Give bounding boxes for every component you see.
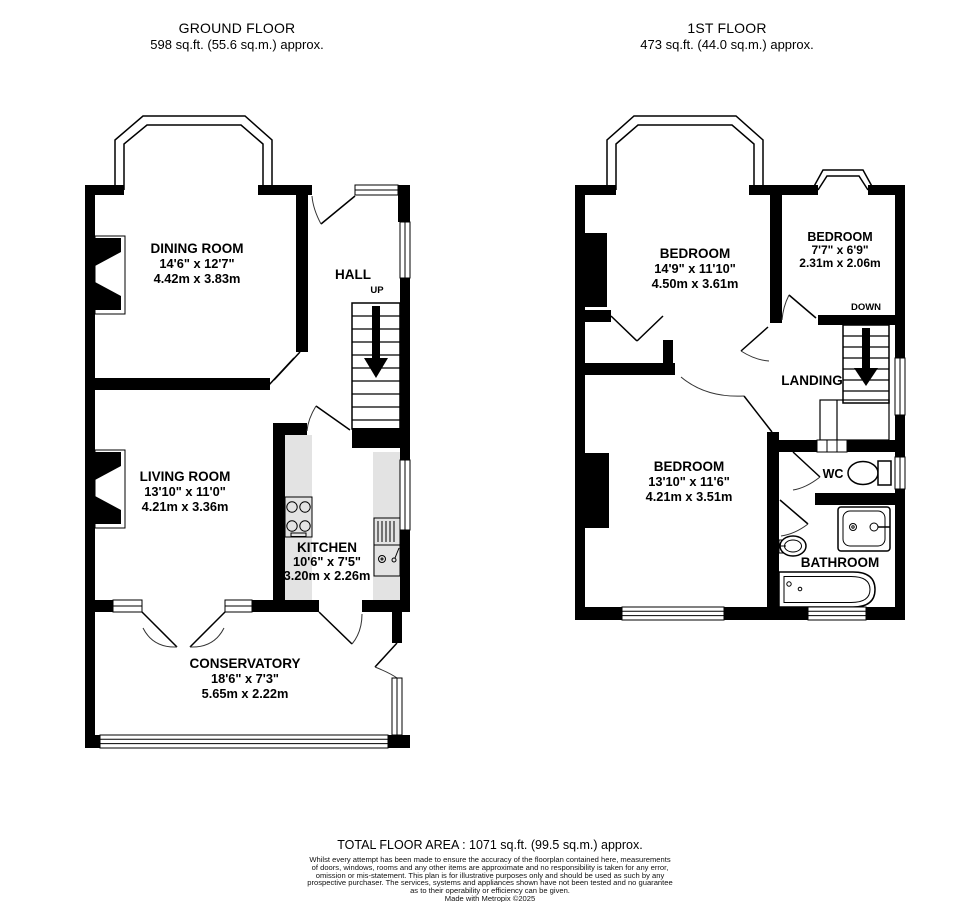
bedroom2-imperial: 7'7" x 6'9" bbox=[811, 243, 868, 257]
bedroom3-chimney bbox=[585, 453, 609, 528]
bedroom3-imperial: 13'10" x 11'6" bbox=[648, 474, 730, 489]
bedroom1-label: BEDROOM bbox=[660, 246, 731, 261]
bedroom1-door bbox=[741, 327, 769, 361]
stairs-up bbox=[352, 303, 400, 429]
dining-room-metric: 4.42m x 3.83m bbox=[154, 271, 241, 286]
living-window-1 bbox=[113, 600, 142, 612]
hall-side-window bbox=[400, 222, 410, 278]
bedroom2-metric: 2.31m x 2.06m bbox=[799, 256, 880, 270]
living-chimney bbox=[95, 450, 125, 528]
bay-window bbox=[109, 116, 273, 195]
living-room-metric: 4.21m x 3.36m bbox=[142, 499, 229, 514]
stairs-down-arrow-icon bbox=[854, 328, 878, 386]
conservatory-side-window bbox=[392, 678, 402, 735]
toilet-icon bbox=[848, 461, 891, 485]
shower-icon bbox=[838, 507, 890, 551]
ground-floor-plan: DINING ROOM 14'6" x 12'7" 4.42m x 3.83m … bbox=[85, 116, 410, 748]
conservatory-bottom-window bbox=[100, 735, 388, 748]
living-room-label: LIVING ROOM bbox=[140, 469, 231, 484]
kitchen-label: KITCHEN bbox=[297, 540, 357, 555]
wc-label: WC bbox=[823, 467, 844, 481]
hall-front-window bbox=[355, 185, 398, 195]
bedroom1-metric: 4.50m x 3.61m bbox=[652, 276, 739, 291]
bedroom3-metric: 4.21m x 3.51m bbox=[646, 489, 733, 504]
dining-chimney bbox=[95, 236, 125, 314]
dining-living-doors bbox=[268, 352, 300, 386]
floorplan-canvas: GROUND FLOOR 598 sq.ft. (55.6 sq.m.) app… bbox=[0, 0, 980, 902]
bedroom2-door bbox=[782, 295, 816, 320]
total-floor-area: TOTAL FLOOR AREA : 1071 sq.ft. (99.5 sq.… bbox=[0, 838, 980, 852]
living-room-imperial: 13'10" x 11'0" bbox=[144, 484, 226, 499]
conservatory-imperial: 18'6" x 7'3" bbox=[211, 671, 279, 686]
wc-window bbox=[895, 457, 905, 489]
kitchen-metric: 3.20m x 2.26m bbox=[284, 568, 371, 583]
understairs-store-front bbox=[817, 440, 847, 452]
landing-window bbox=[895, 358, 905, 415]
wc-door bbox=[793, 452, 820, 490]
hall-label: HALL bbox=[335, 267, 371, 282]
living-window-2 bbox=[225, 600, 252, 612]
conservatory-metric: 5.65m x 2.22m bbox=[202, 686, 289, 701]
front-door bbox=[312, 196, 355, 224]
kitchen-imperial: 10'6" x 7'5" bbox=[293, 554, 361, 569]
stairs-down-label: DOWN bbox=[851, 302, 881, 313]
bedroom3-window bbox=[622, 607, 724, 620]
bedroom1-chimney bbox=[585, 233, 607, 307]
metropix-credit: Made with Metropix ©2025 bbox=[0, 895, 980, 902]
dining-room-imperial: 14'6" x 12'7" bbox=[159, 256, 234, 271]
kitchen-window bbox=[400, 460, 410, 530]
basin-icon bbox=[779, 536, 806, 556]
bedroom2-label: BEDROOM bbox=[807, 230, 872, 244]
cupboard-doors bbox=[611, 316, 663, 341]
footer: TOTAL FLOOR AREA : 1071 sq.ft. (99.5 sq.… bbox=[0, 838, 980, 902]
bathroom-door bbox=[780, 500, 808, 536]
floorplan-drawing: DINING ROOM 14'6" x 12'7" 4.42m x 3.83m … bbox=[0, 0, 980, 902]
bathroom-label: BATHROOM bbox=[801, 555, 880, 570]
kitchen-door bbox=[307, 406, 350, 431]
bathtub-icon bbox=[779, 572, 875, 607]
conservatory-side-door bbox=[375, 643, 397, 678]
bedroom1-imperial: 14'9" x 11'10" bbox=[654, 261, 736, 276]
bedroom-bay-window bbox=[601, 116, 764, 195]
small-bay-window bbox=[806, 170, 880, 195]
stairs-up-label: UP bbox=[370, 285, 384, 296]
landing-label: LANDING bbox=[781, 373, 843, 388]
french-doors bbox=[142, 612, 225, 647]
kitchen-conservatory-door bbox=[319, 612, 362, 644]
first-floor-plan: BEDROOM 14'9" x 11'10" 4.50m x 3.61m BED… bbox=[575, 116, 905, 620]
dining-room-label: DINING ROOM bbox=[151, 241, 244, 256]
bathroom-window bbox=[808, 607, 866, 620]
bedroom3-door bbox=[681, 377, 772, 432]
bedroom3-label: BEDROOM bbox=[654, 459, 725, 474]
conservatory-label: CONSERVATORY bbox=[189, 656, 300, 671]
